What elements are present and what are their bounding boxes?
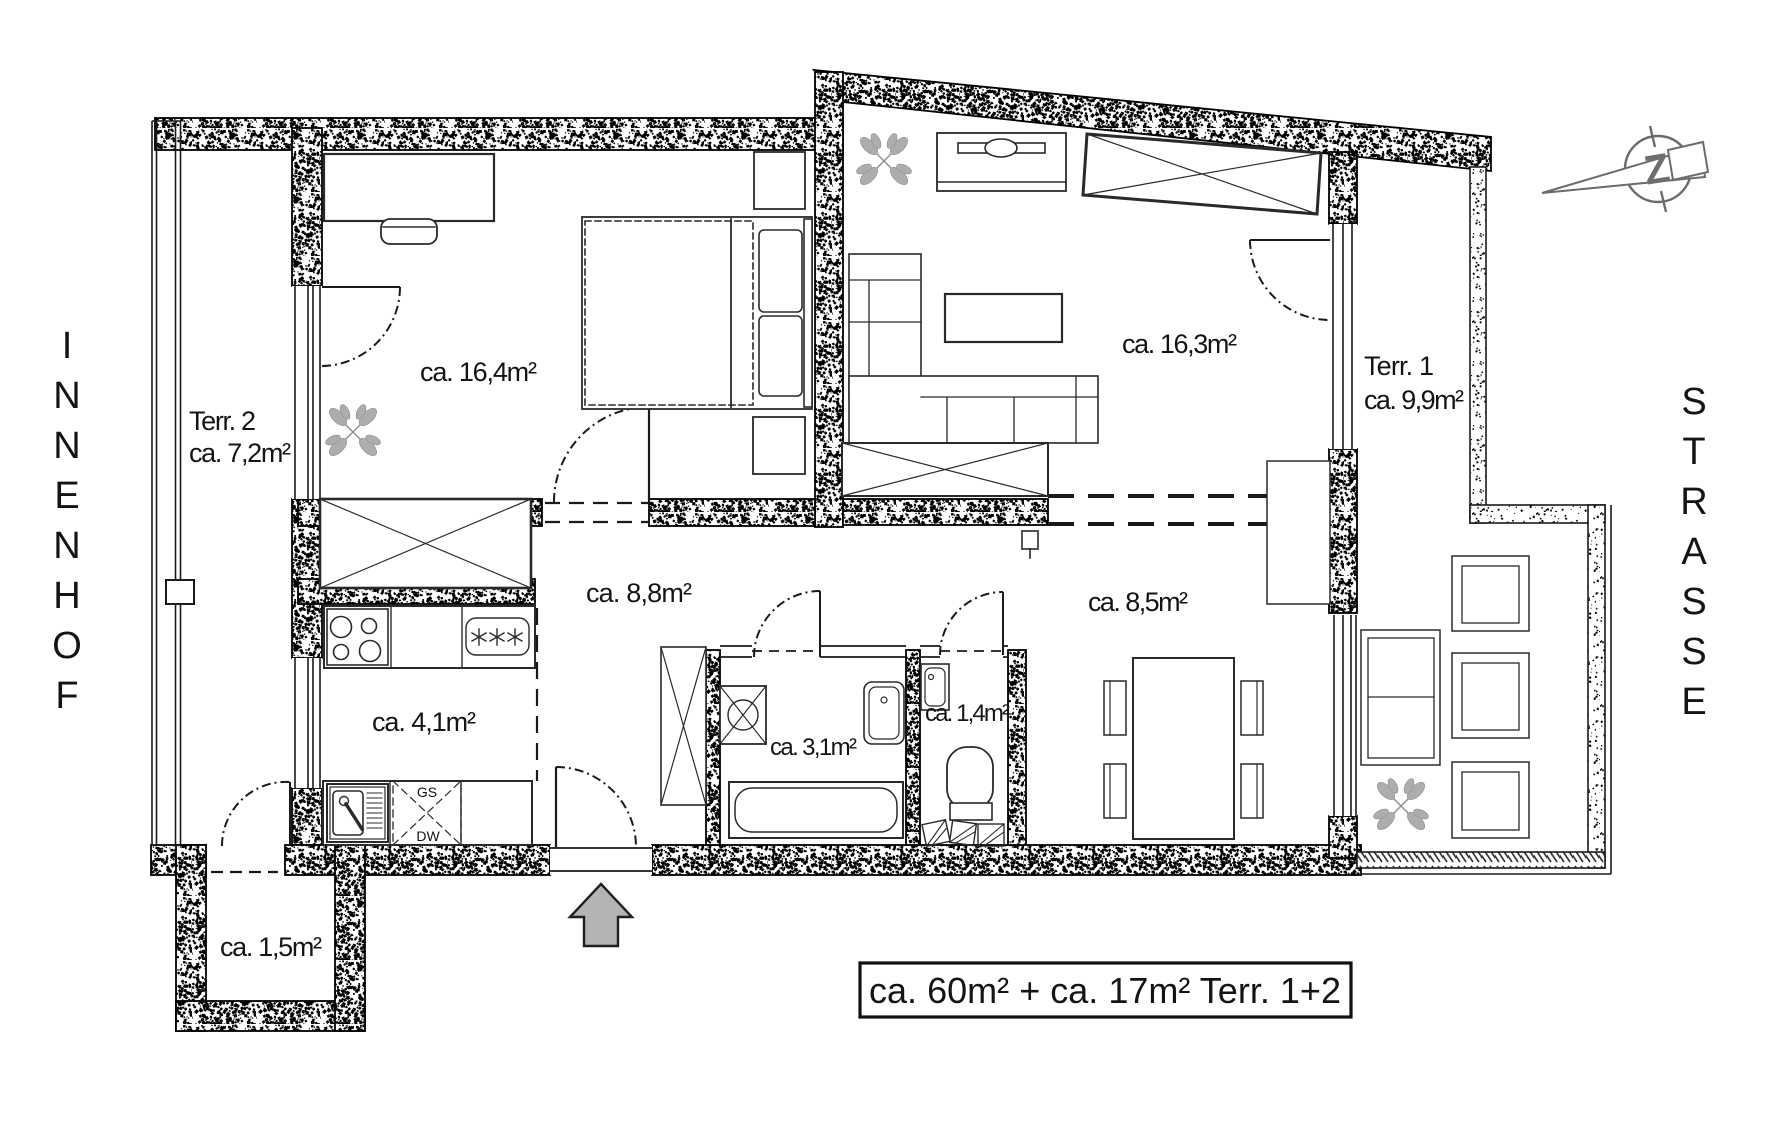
svg-text:H: H — [53, 575, 80, 617]
svg-text:ca. 1,4m²: ca. 1,4m² — [925, 700, 1010, 727]
svg-text:A: A — [1681, 531, 1707, 573]
svg-text:S: S — [1681, 631, 1706, 673]
svg-text:R: R — [1680, 481, 1707, 523]
svg-text:N: N — [53, 425, 80, 467]
svg-text:E: E — [1681, 681, 1706, 723]
svg-text:ca. 4,1m²: ca. 4,1m² — [372, 707, 476, 737]
svg-text:N: N — [53, 375, 80, 417]
svg-text:T: T — [1682, 431, 1705, 473]
svg-text:ca. 8,5m²: ca. 8,5m² — [1088, 587, 1188, 617]
svg-text:Terr. 2: Terr. 2 — [189, 406, 256, 436]
svg-text:GS: GS — [417, 784, 437, 800]
svg-text:ca. 3,1m²: ca. 3,1m² — [770, 734, 857, 761]
svg-text:ca. 60m² + ca. 17m² Terr. 1+2: ca. 60m² + ca. 17m² Terr. 1+2 — [869, 970, 1341, 1011]
svg-text:ca. 1,5m²: ca. 1,5m² — [220, 932, 322, 962]
svg-text:Terr. 1: Terr. 1 — [1364, 351, 1434, 381]
svg-text:ca. 16,4m²: ca. 16,4m² — [420, 357, 537, 387]
svg-text:I: I — [62, 325, 73, 367]
svg-text:S: S — [1681, 581, 1706, 623]
svg-text:DW: DW — [416, 828, 440, 844]
svg-text:ca. 16,3m²: ca. 16,3m² — [1122, 329, 1237, 359]
svg-text:ca. 9,9m²: ca. 9,9m² — [1364, 385, 1464, 415]
svg-text:F: F — [55, 675, 78, 717]
svg-text:ca. 8,8m²: ca. 8,8m² — [586, 578, 692, 608]
svg-text:E: E — [54, 475, 79, 517]
svg-text:O: O — [52, 625, 82, 667]
svg-text:S: S — [1681, 381, 1706, 423]
svg-text:N: N — [53, 525, 80, 567]
svg-text:ca. 7,2m²: ca. 7,2m² — [189, 438, 291, 468]
